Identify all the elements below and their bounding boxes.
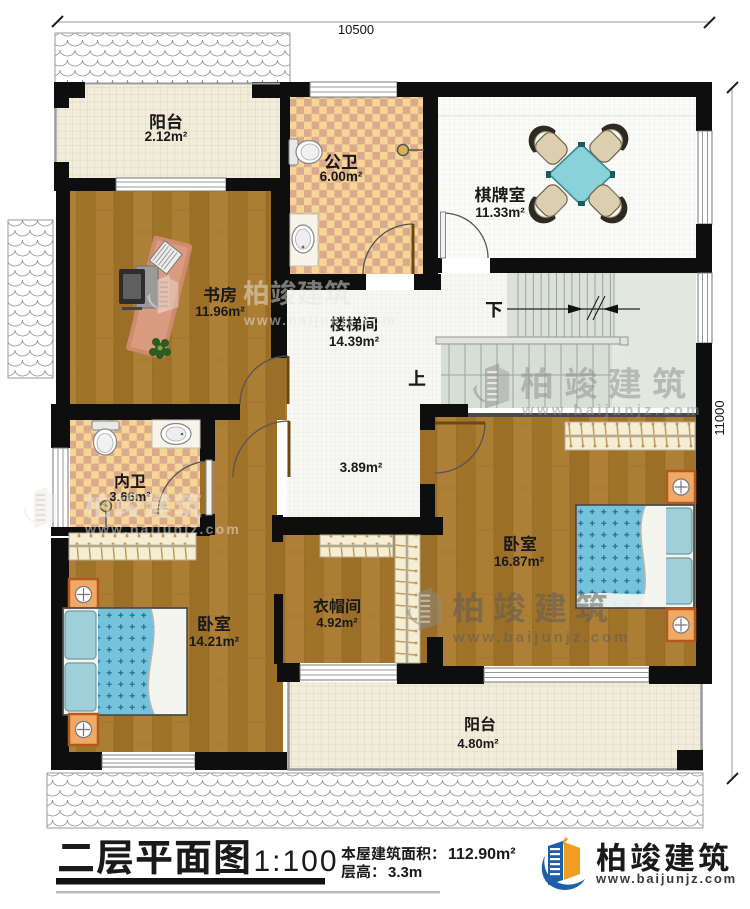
svg-text:6.00m²: 6.00m² — [320, 169, 363, 184]
svg-text:10500: 10500 — [338, 22, 374, 37]
svg-text:www.baijunjz.com: www.baijunjz.com — [452, 629, 630, 646]
svg-text:11.96m²: 11.96m² — [195, 304, 245, 319]
svg-text:www.baijunjz.com: www.baijunjz.com — [243, 312, 397, 328]
svg-text:1:100: 1:100 — [253, 845, 338, 878]
svg-text:14.21m²: 14.21m² — [189, 634, 240, 649]
svg-text:www.baijunjz.com: www.baijunjz.com — [595, 871, 737, 886]
svg-text:16.87m²: 16.87m² — [494, 554, 545, 569]
svg-text:4.92m²: 4.92m² — [316, 615, 358, 630]
svg-text:2.12m²: 2.12m² — [145, 129, 188, 144]
svg-text:4.80m²: 4.80m² — [457, 736, 499, 751]
svg-text:www.baijunjz.com: www.baijunjz.com — [521, 402, 703, 419]
svg-text:3.3m: 3.3m — [388, 864, 422, 881]
svg-text:3.89m²: 3.89m² — [340, 460, 383, 475]
svg-text:112.90m²: 112.90m² — [448, 846, 516, 863]
svg-text:11.33m²: 11.33m² — [475, 205, 525, 220]
svg-text:11000: 11000 — [712, 400, 727, 435]
svg-text:14.39m²: 14.39m² — [329, 334, 380, 349]
svg-text:www.baijunjz.com: www.baijunjz.com — [84, 521, 241, 537]
